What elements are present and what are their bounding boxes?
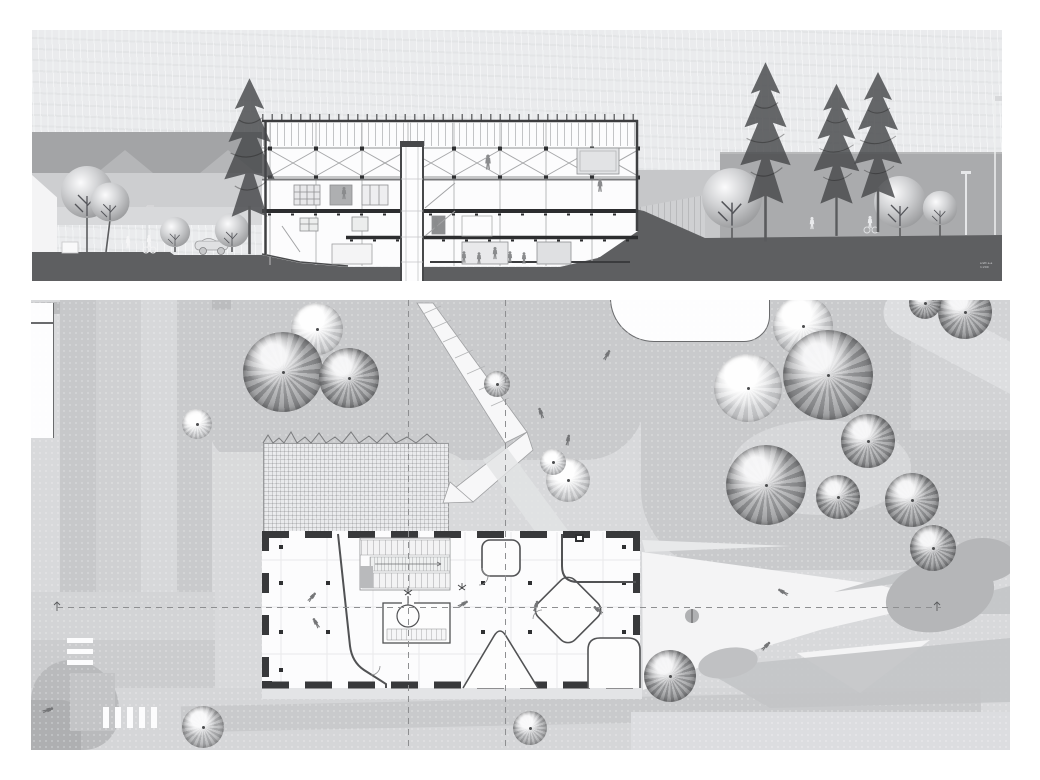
section-panel: snitt a-a 1:200 [32, 30, 1002, 281]
plan-tree [816, 475, 860, 519]
section-cut-vegetation [263, 432, 437, 443]
plan-tree [484, 371, 510, 397]
plan-tree [182, 409, 212, 439]
grid-axis-vertical-2 [505, 300, 506, 750]
elevator-shaft [401, 142, 423, 281]
plan-tree [243, 332, 323, 412]
pod-meeting-room [482, 540, 520, 576]
scale-note: snitt a-a 1:200 [980, 261, 1002, 269]
building-plan [262, 531, 640, 688]
building-section [262, 117, 644, 281]
grid-axis-vertical-1 [408, 300, 409, 750]
plan-tree [841, 414, 895, 468]
service-core [360, 538, 450, 590]
scale-note-line2: 1:200 [980, 265, 1002, 269]
plan-tree [714, 354, 782, 422]
presentation-board: snitt a-a 1:200 [0, 0, 1040, 780]
section-cut-line [57, 607, 941, 608]
plan-tree [319, 348, 379, 408]
plan-tree [910, 525, 956, 571]
plan-tree [726, 445, 806, 525]
site-plan-panel [31, 300, 1010, 750]
plan-tree [513, 711, 547, 745]
bus-shelter [62, 242, 78, 253]
stepped-path [417, 303, 575, 545]
flag [995, 96, 1002, 101]
plan-tree [783, 330, 873, 420]
pod-corner-room [588, 638, 640, 688]
plan-tree [182, 706, 224, 748]
plan-tree [644, 650, 696, 702]
section-linework [32, 30, 1002, 281]
plan-tree [885, 473, 939, 527]
plan-tree [540, 449, 566, 475]
